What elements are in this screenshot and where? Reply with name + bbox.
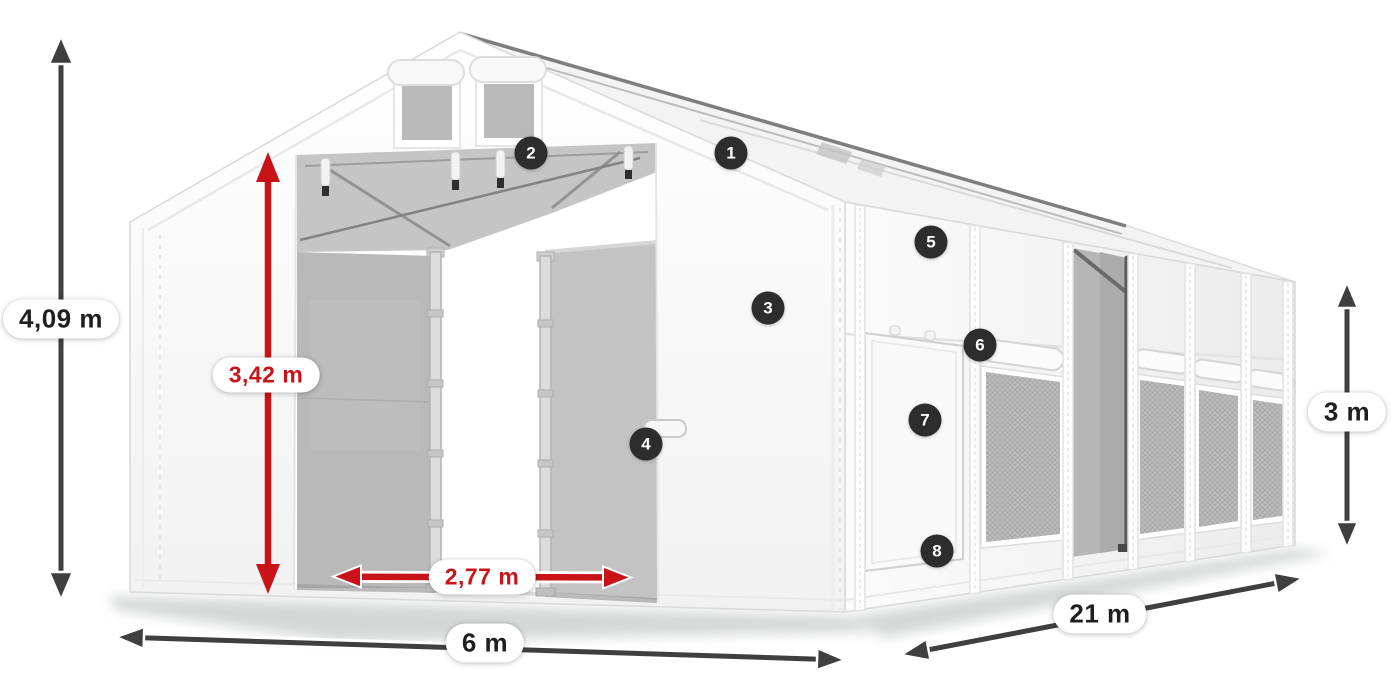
dim-label-width: 6 m [446,624,524,663]
hotspot-4[interactable]: 4 [630,428,663,461]
hotspot-2-number: 2 [526,143,535,163]
hotspot-4-number: 4 [641,434,650,454]
hotspot-2[interactable]: 2 [515,137,548,170]
side-doorway-open [1072,248,1134,557]
tent-illustration [0,0,1400,700]
hotspot-6[interactable]: 6 [964,329,997,362]
tent-dimension-diagram: 4,09 m 3,42 m 2,77 m 6 m 21 m 3 m 1 2 3 … [0,0,1400,700]
dim-label-total-height: 4,09 m [3,300,119,339]
dim-label-side-height: 3 m [1308,393,1386,432]
hotspot-6-number: 6 [975,335,984,355]
dim-label-entrance-width: 2,77 m [429,560,536,595]
entrance-opening [293,143,658,603]
hotspot-5-number: 5 [926,232,935,252]
hotspot-7[interactable]: 7 [909,404,942,437]
hotspot-5[interactable]: 5 [915,226,948,259]
side-door-panel [865,326,963,571]
hotspot-3[interactable]: 3 [752,292,785,325]
hotspot-3-number: 3 [763,298,772,318]
dim-label-length: 21 m [1053,595,1146,634]
hotspot-8[interactable]: 8 [921,535,954,568]
hotspot-1[interactable]: 1 [715,137,748,170]
hotspot-8-number: 8 [932,541,941,561]
hotspot-1-number: 1 [726,143,735,163]
hotspot-7-number: 7 [920,410,929,430]
dim-label-entrance-height: 3,42 m [213,358,320,393]
